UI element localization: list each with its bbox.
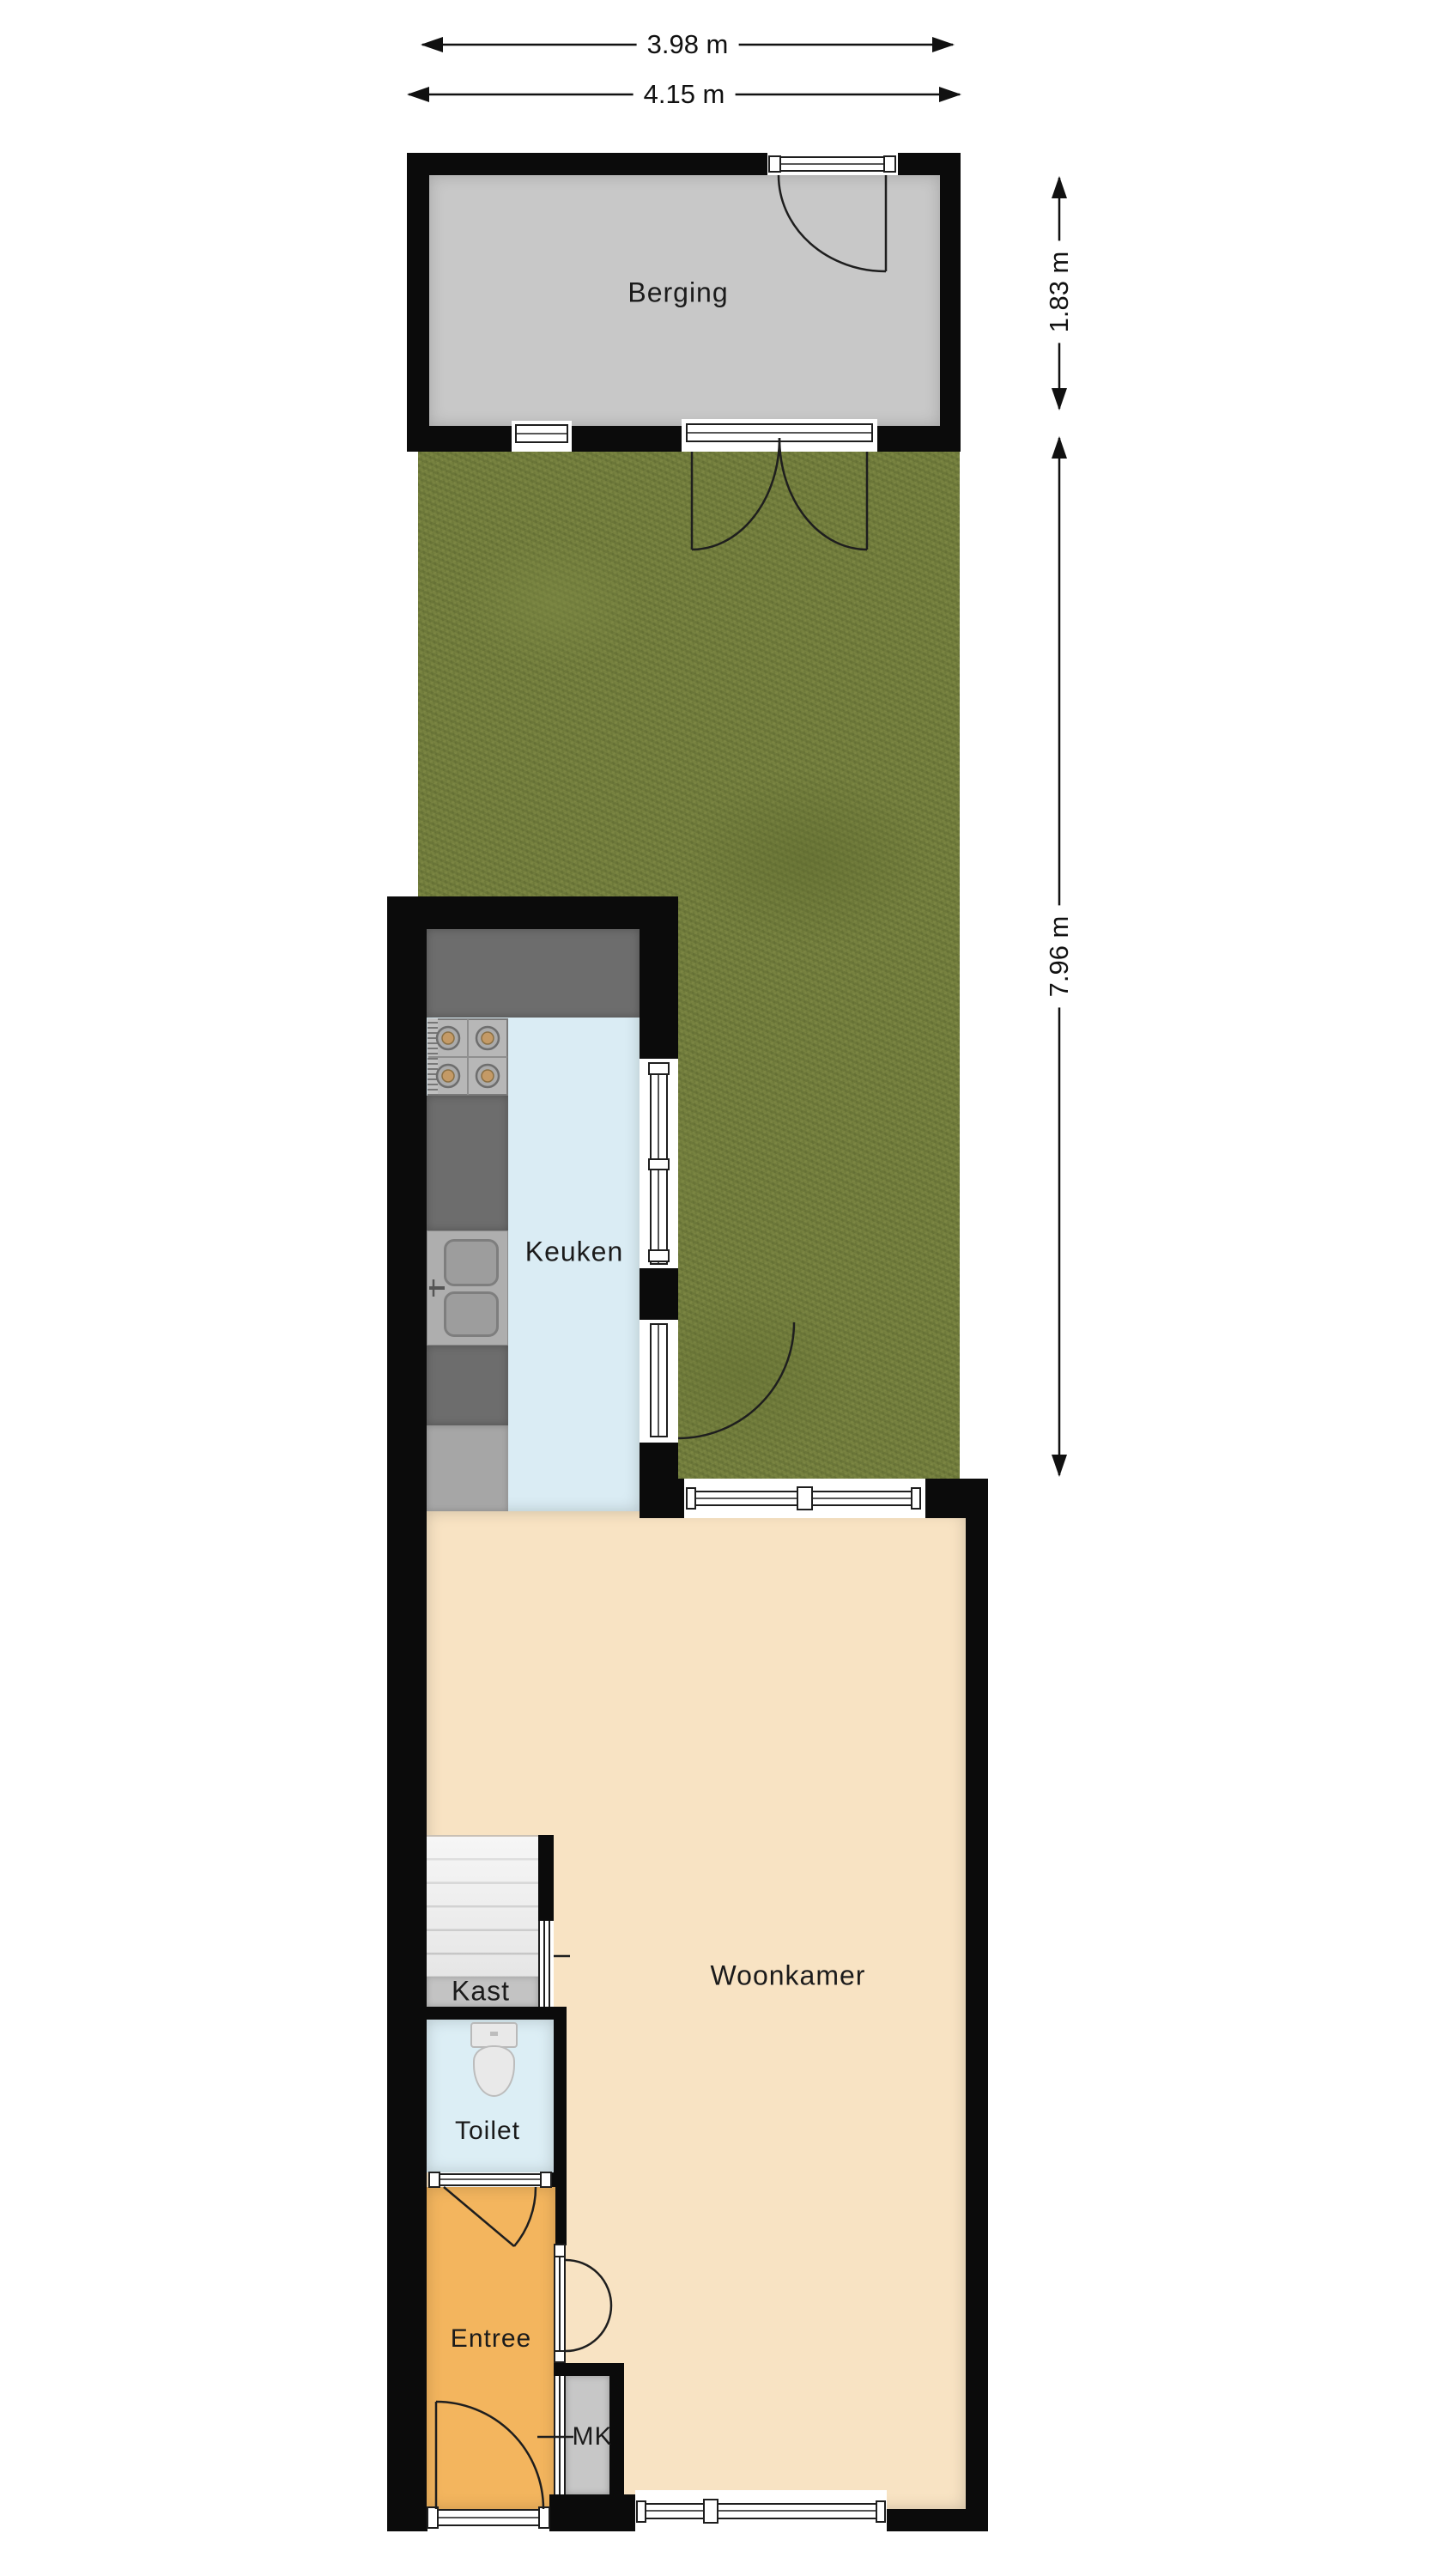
kitchen-garden-door-detail	[651, 1324, 667, 1437]
berging-top-door-swing	[779, 175, 886, 271]
front-door-swing	[436, 2402, 543, 2509]
berging-bottom-window-detail	[516, 425, 567, 442]
kitchen-garden-door-swing	[678, 1322, 794, 1438]
room-label-entree: Entree	[451, 2324, 531, 2354]
dim-label-shed-depth: 1.83 m	[1042, 241, 1076, 343]
berging-top-door-detail	[769, 156, 895, 172]
dim-label-top-inner: 3.98 m	[637, 27, 739, 62]
berging-garden-doors-swing	[692, 438, 867, 550]
room-label-kast: Kast	[452, 1976, 510, 2008]
living-door-swing	[566, 2260, 611, 2351]
floor-plan: 3.98 m 4.15 m 1.83 m 7.96 m Berging Keuk…	[0, 0, 1449, 2576]
room-label-mk: MK	[573, 2422, 613, 2451]
room-label-toilet: Toilet	[455, 2117, 520, 2146]
sink-faucet	[429, 1279, 445, 1297]
toilet-door-swing	[444, 2187, 536, 2246]
front-door-detail	[427, 2507, 549, 2528]
living-window-top-detail	[687, 1487, 920, 1510]
kitchen-window-upper-detail	[649, 1063, 669, 1264]
toilet-door-detail	[429, 2172, 551, 2187]
room-label-berging: Berging	[627, 277, 728, 309]
dim-label-top-outer: 4.15 m	[634, 77, 736, 112]
room-label-woonkamer: Woonkamer	[711, 1960, 866, 1992]
room-label-keuken: Keuken	[525, 1236, 624, 1268]
living-window-bottom-detail	[637, 2500, 885, 2523]
dim-label-garden-depth: 7.96 m	[1042, 906, 1076, 1008]
detail-overlay	[0, 0, 1449, 2576]
